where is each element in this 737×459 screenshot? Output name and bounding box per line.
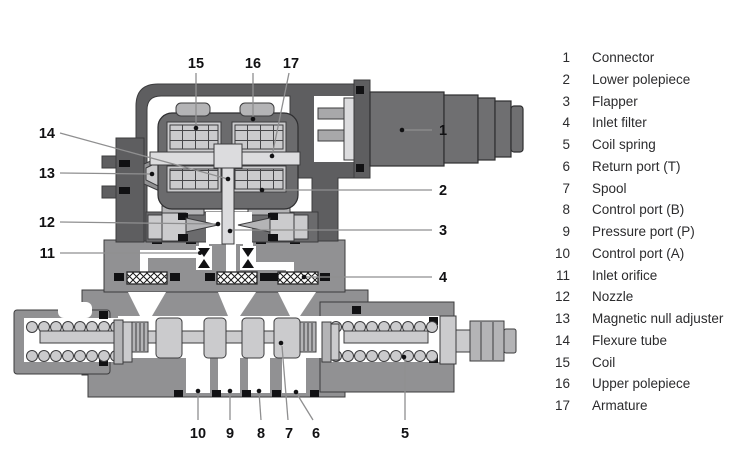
control-port-B xyxy=(248,356,270,393)
spring-coil xyxy=(99,351,110,362)
spool xyxy=(132,318,316,358)
legend-item-number: 4 xyxy=(548,112,570,134)
legend-item-number: 8 xyxy=(548,199,570,221)
legend-item: 7Spool xyxy=(548,178,734,200)
legend-list: 1Connector2Lower polepiece3Flapper4Inlet… xyxy=(548,47,734,417)
legend-item-label: Upper polepiece xyxy=(592,373,690,395)
spring-coil xyxy=(87,351,98,362)
legend-item-number: 10 xyxy=(548,243,570,265)
legend-item: 11Inlet orifice xyxy=(548,265,734,287)
spring-coil xyxy=(51,351,62,362)
callout-1: 1 xyxy=(439,123,447,139)
legend: 1Connector2Lower polepiece3Flapper4Inlet… xyxy=(548,47,734,417)
servo-valve-cutaway-figure: 1 2 3 4 5 6 7 8 9 10 11 12 13 14 15 16 1… xyxy=(0,0,737,459)
legend-item: 10Control port (A) xyxy=(548,243,734,265)
callout-11: 11 xyxy=(40,246,55,262)
callout-8: 8 xyxy=(257,426,265,442)
legend-item-number: 3 xyxy=(548,91,570,113)
legend-item-number: 11 xyxy=(548,265,570,287)
legend-item: 14Flexure tube xyxy=(548,330,734,352)
legend-item-number: 17 xyxy=(548,395,570,417)
legend-item: 4Inlet filter xyxy=(548,112,734,134)
spring-coil xyxy=(343,351,354,362)
legend-item: 12Nozzle xyxy=(548,286,734,308)
callout-15: 15 xyxy=(188,56,204,72)
spring-coil xyxy=(415,351,426,362)
legend-item-label: Inlet orifice xyxy=(592,265,657,287)
pressure-port-P xyxy=(218,356,240,393)
legend-item: 8Control port (B) xyxy=(548,199,734,221)
spring-coil xyxy=(63,351,74,362)
spring-coil xyxy=(391,351,402,362)
legend-item-label: Connector xyxy=(592,47,654,69)
legend-item-number: 7 xyxy=(548,178,570,200)
callout-9: 9 xyxy=(226,426,234,442)
bolt-tip xyxy=(504,329,516,353)
legend-item: 5Coil spring xyxy=(548,134,734,156)
connector-plate xyxy=(354,80,370,178)
nozzle-cap-right xyxy=(294,215,308,239)
callout-14: 14 xyxy=(39,126,55,142)
legend-item-label: Coil spring xyxy=(592,134,656,156)
legend-item: 16Upper polepiece xyxy=(548,373,734,395)
callout-12: 12 xyxy=(39,215,55,231)
legend-item-label: Return port (T) xyxy=(592,156,681,178)
nozzle-cap-left xyxy=(148,215,162,239)
callout-5: 5 xyxy=(401,426,409,442)
callout-7: 7 xyxy=(285,426,293,442)
bolt-hex xyxy=(470,321,504,361)
legend-item-number: 14 xyxy=(548,330,570,352)
legend-item-number: 1 xyxy=(548,47,570,69)
legend-item-label: Pressure port (P) xyxy=(592,221,695,243)
legend-item: 15Coil xyxy=(548,352,734,374)
callout-2: 2 xyxy=(439,183,447,199)
legend-item-number: 16 xyxy=(548,373,570,395)
control-port-A xyxy=(186,356,210,393)
legend-item-number: 12 xyxy=(548,286,570,308)
spool-land xyxy=(274,318,300,358)
legend-item-number: 9 xyxy=(548,221,570,243)
legend-item-number: 5 xyxy=(548,134,570,156)
legend-item-label: Magnetic null adjuster xyxy=(592,308,723,330)
spool-land xyxy=(156,318,182,358)
legend-item: 1Connector xyxy=(548,47,734,69)
legend-item-label: Spool xyxy=(592,178,627,200)
legend-item-number: 6 xyxy=(548,156,570,178)
callout-10: 10 xyxy=(190,426,206,442)
spring-coil xyxy=(27,322,38,333)
spring-coil xyxy=(27,351,38,362)
inlet-filters xyxy=(127,272,318,284)
legend-item-label: Armature xyxy=(592,395,648,417)
callout-17: 17 xyxy=(283,56,299,72)
legend-item-number: 13 xyxy=(548,308,570,330)
end-plug-and-bolt xyxy=(440,316,516,364)
spring-coil xyxy=(427,351,438,362)
legend-item: 3Flapper xyxy=(548,91,734,113)
spring-coil xyxy=(39,351,50,362)
callout-13: 13 xyxy=(39,166,55,182)
legend-item-number: 2 xyxy=(548,69,570,91)
legend-item-label: Coil xyxy=(592,352,615,374)
legend-item-label: Control port (A) xyxy=(592,243,684,265)
spring-coil xyxy=(75,351,86,362)
callout-6: 6 xyxy=(312,426,320,442)
callout-4: 4 xyxy=(439,270,447,286)
legend-item: 9Pressure port (P) xyxy=(548,221,734,243)
callout-3: 3 xyxy=(439,223,447,239)
legend-item: 13Magnetic null adjuster xyxy=(548,308,734,330)
legend-item: 2Lower polepiece xyxy=(548,69,734,91)
legend-item: 17Armature xyxy=(548,395,734,417)
spring-coil xyxy=(379,351,390,362)
legend-item-label: Lower polepiece xyxy=(592,69,690,91)
legend-item-label: Nozzle xyxy=(592,286,633,308)
spring-coil xyxy=(367,351,378,362)
valve-body xyxy=(14,237,516,397)
legend-item-label: Control port (B) xyxy=(592,199,684,221)
legend-item-label: Flexure tube xyxy=(592,330,667,352)
legend-item-label: Flapper xyxy=(592,91,638,113)
callout-16: 16 xyxy=(245,56,261,72)
diagram-svg: 1 2 3 4 5 6 7 8 9 10 11 12 13 14 15 16 1… xyxy=(0,0,545,459)
legend-item: 6Return port (T) xyxy=(548,156,734,178)
armature-hub xyxy=(214,144,242,168)
spool-land xyxy=(204,318,226,358)
legend-item-label: Inlet filter xyxy=(592,112,647,134)
spring-coil xyxy=(355,351,366,362)
spool-land xyxy=(242,318,264,358)
legend-item-number: 15 xyxy=(548,352,570,374)
